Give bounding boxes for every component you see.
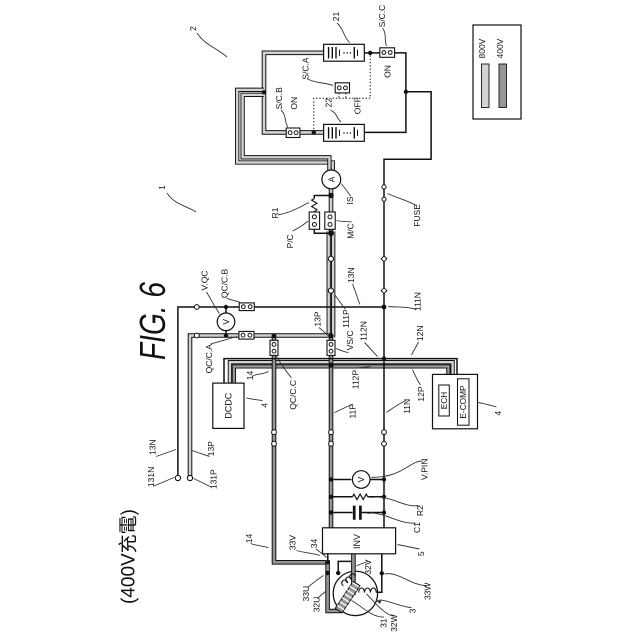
svg-text:QC/C.A: QC/C.A — [204, 344, 214, 374]
svg-text:V.PIN: V.PIN — [420, 459, 430, 480]
svg-text:M/C: M/C — [346, 223, 356, 239]
svg-text:INV: INV — [352, 534, 362, 549]
svg-text:5: 5 — [416, 551, 426, 556]
svg-text:13P: 13P — [206, 441, 216, 456]
svg-text:ON: ON — [289, 97, 299, 110]
svg-text:V: V — [356, 476, 366, 482]
svg-text:33W: 33W — [423, 583, 433, 600]
svg-text:ON: ON — [383, 65, 393, 78]
svg-text:400V: 400V — [495, 38, 505, 58]
svg-text:S/C.C: S/C.C — [377, 5, 387, 28]
svg-text:34: 34 — [309, 539, 319, 549]
svg-text:13N: 13N — [346, 267, 356, 283]
svg-text:QC/C.C: QC/C.C — [288, 380, 298, 410]
svg-text:P/C: P/C — [285, 234, 295, 248]
svg-text:12P: 12P — [416, 386, 426, 401]
svg-text:3: 3 — [408, 608, 418, 613]
svg-text:R2: R2 — [415, 505, 425, 516]
svg-text:14: 14 — [245, 371, 255, 381]
svg-text:4: 4 — [259, 403, 269, 408]
svg-text:32U: 32U — [311, 597, 321, 613]
svg-text:22: 22 — [323, 98, 333, 108]
svg-text:14: 14 — [244, 534, 254, 544]
svg-text:ECH: ECH — [439, 392, 449, 410]
svg-text:33U: 33U — [301, 586, 311, 602]
svg-text:E-COMP: E-COMP — [458, 385, 468, 419]
svg-text:FIG. 6: FIG. 6 — [132, 281, 173, 360]
svg-text:V.QC: V.QC — [200, 270, 210, 290]
svg-text:32V: 32V — [363, 559, 373, 574]
svg-text:131P: 131P — [209, 469, 219, 489]
svg-text:32W: 32W — [389, 614, 399, 631]
svg-text:21: 21 — [331, 12, 341, 22]
svg-text:4: 4 — [493, 411, 503, 416]
svg-text:S/C.B: S/C.B — [274, 87, 284, 110]
svg-text:QC/C.B: QC/C.B — [220, 269, 230, 299]
svg-text:2: 2 — [188, 26, 198, 31]
svg-text:R1: R1 — [270, 207, 280, 218]
svg-text:1: 1 — [157, 185, 167, 190]
svg-text:VS/C: VS/C — [345, 330, 355, 350]
svg-text:31: 31 — [379, 618, 389, 628]
svg-text:112P: 112P — [351, 370, 361, 390]
svg-text:111P: 111P — [341, 309, 351, 328]
svg-text:131N: 131N — [146, 467, 156, 487]
svg-text:33V: 33V — [288, 535, 298, 550]
svg-text:11N: 11N — [402, 399, 412, 414]
svg-text:FUSE: FUSE — [412, 204, 422, 227]
svg-text:111N: 111N — [413, 292, 423, 311]
svg-text:V: V — [221, 319, 231, 325]
svg-text:112N: 112N — [359, 321, 369, 341]
svg-text:S/C.A: S/C.A — [301, 57, 311, 80]
svg-text:13N: 13N — [148, 439, 158, 455]
svg-text:OFF: OFF — [352, 97, 362, 114]
svg-text:C1: C1 — [412, 522, 422, 533]
svg-text:13P: 13P — [312, 311, 322, 326]
svg-text:12N: 12N — [415, 326, 425, 342]
svg-text:DCDC: DCDC — [223, 392, 233, 418]
svg-text:IS: IS — [345, 196, 355, 204]
svg-text:11P: 11P — [348, 404, 358, 419]
svg-text:A: A — [326, 176, 336, 182]
svg-text:(400V充電): (400V充電) — [118, 509, 140, 604]
svg-text:800V: 800V — [477, 38, 487, 58]
